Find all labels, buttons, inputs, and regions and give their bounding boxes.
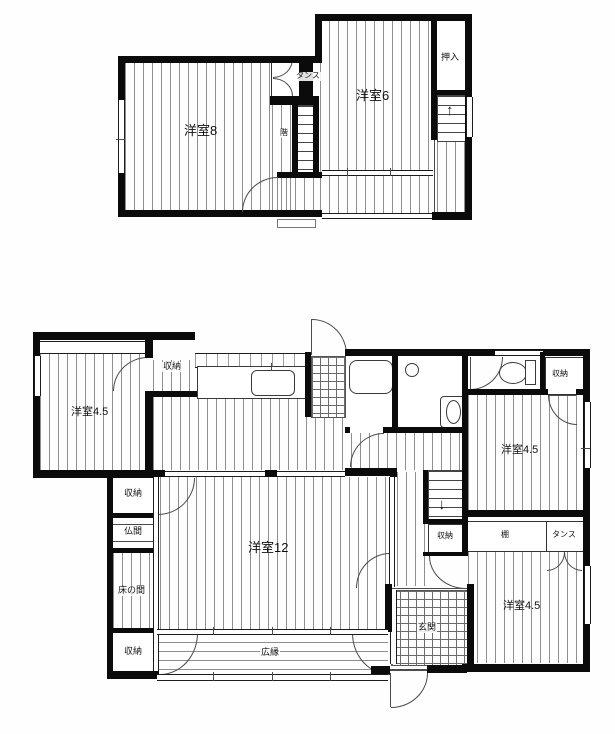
wall: [427, 665, 467, 673]
wall: [467, 584, 474, 668]
closet-label: 収納: [162, 362, 182, 372]
wall: [145, 340, 153, 358]
wall: [462, 352, 468, 516]
room-label: 洋室6: [355, 89, 390, 103]
wall: [431, 21, 437, 140]
washbasin-bowl: [446, 400, 461, 424]
wall: [390, 470, 397, 477]
service-entry-tile: [311, 356, 346, 418]
wall: [462, 510, 468, 556]
wall: [423, 552, 463, 556]
toilet-door-arc: [470, 357, 503, 390]
closet-label: 収納: [123, 647, 143, 657]
closet-label: 収納: [436, 532, 454, 541]
sliding-doors: [153, 477, 159, 671]
wall: [107, 671, 159, 679]
wall: [107, 628, 155, 633]
faucet-icon: [271, 363, 272, 371]
floor-plan-scan: ↑ 洋室8 洋室6 タンス 押入 階: [0, 0, 615, 734]
wall: [107, 513, 155, 518]
window: [118, 100, 125, 173]
room-label: 洋室4.5: [70, 406, 109, 418]
room-label: 広縁: [260, 648, 280, 658]
room-label: 洋室4.5: [502, 600, 541, 612]
wall: [265, 470, 277, 477]
closet-label: 収納: [551, 370, 569, 379]
track-tick: [330, 672, 331, 681]
hall-door-arc: [429, 556, 466, 589]
wall: [277, 172, 322, 178]
wall: [107, 548, 155, 553]
closet-label: 収納: [123, 489, 143, 499]
wall: [313, 96, 319, 174]
butsuma-shelf-line: [113, 541, 153, 542]
stair-label: 階: [279, 129, 289, 138]
closet-label: タンス: [551, 531, 577, 540]
wall: [305, 352, 311, 417]
room-label: 床の間: [117, 586, 146, 596]
front-door-threshold: [390, 669, 427, 671]
wall: [385, 584, 392, 632]
track-tick: [272, 672, 273, 681]
window: [34, 356, 41, 396]
sliding-doors: [165, 471, 265, 477]
closet-label: 押入: [440, 53, 460, 63]
wall: [33, 332, 195, 340]
room-label: 洋室12: [247, 541, 289, 555]
up-arrow-icon: ↑: [446, 103, 454, 118]
wall: [315, 14, 472, 21]
stair-hall-divider: [434, 140, 435, 212]
genkan-hall-line: [390, 588, 467, 589]
step-ledge: [277, 219, 316, 228]
wall: [540, 352, 545, 393]
wall: [576, 389, 585, 395]
toilet-door-leaf: [470, 357, 471, 389]
room-label: 仏間: [123, 527, 143, 537]
landing-floor: [277, 178, 317, 211]
door-gap: [350, 427, 383, 433]
sliding-doors: [277, 471, 345, 477]
window: [495, 350, 543, 356]
window: [584, 566, 591, 624]
bathtub: [349, 360, 393, 394]
wall: [462, 510, 585, 517]
sliding-door-track: [322, 170, 433, 176]
room-label: 洋室8: [183, 124, 218, 138]
closet-label: タンス: [295, 72, 321, 81]
wall: [118, 56, 318, 63]
toilet-bowl: [499, 362, 527, 384]
front-door-leaf: [390, 673, 391, 707]
window: [584, 402, 591, 468]
closet-e-door-leaf: [548, 395, 576, 396]
wall: [145, 391, 153, 477]
track-tick: [213, 627, 214, 635]
wall: [431, 90, 472, 95]
down-arrow-icon: ↓: [438, 497, 446, 512]
room-label: 玄関: [417, 623, 437, 633]
sliding-doors: [389, 477, 395, 587]
wall: [107, 470, 165, 477]
wall: [118, 210, 322, 217]
window: [322, 213, 432, 219]
toilet-tank: [525, 360, 536, 385]
wall: [107, 470, 113, 679]
room-label: 洋室4.5: [500, 444, 539, 456]
washing-machine-icon: [405, 363, 419, 377]
track-tick: [330, 627, 331, 635]
track-tick: [272, 627, 273, 635]
front-door-arc: [391, 673, 428, 708]
wall: [423, 519, 463, 524]
back-door-arc: [312, 319, 347, 355]
butsuma-shelf-line: [113, 524, 153, 525]
wall: [150, 391, 197, 397]
track-tick: [347, 168, 348, 176]
wall: [292, 100, 298, 172]
wall: [392, 352, 398, 430]
track-tick: [213, 672, 214, 681]
wall: [371, 666, 390, 674]
shelf-label: 棚: [500, 531, 510, 540]
wall: [423, 470, 428, 519]
stairs-down: [428, 470, 465, 521]
window-tick: [116, 139, 125, 140]
window-band: [40, 341, 146, 354]
wall: [315, 14, 322, 63]
wall: [462, 664, 590, 672]
kitchen-sink: [251, 370, 295, 396]
window: [466, 97, 473, 137]
wall: [33, 332, 40, 477]
track-tick: [390, 168, 391, 176]
window-tick: [581, 448, 590, 449]
wall: [462, 389, 548, 395]
